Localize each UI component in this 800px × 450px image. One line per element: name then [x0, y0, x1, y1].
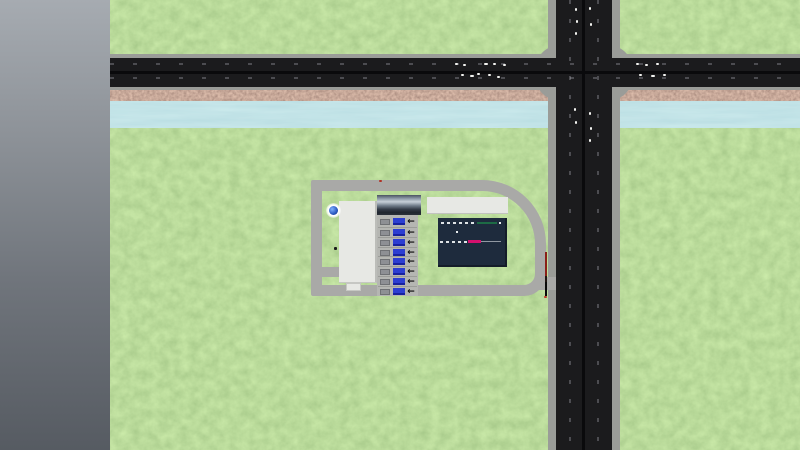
left-arrow-icon: ← [405, 287, 417, 297]
dock-bay-row[interactable]: ← [378, 286, 417, 296]
vertical-road-centerline [582, 0, 585, 450]
truck-trailer[interactable] [393, 258, 405, 265]
game-viewport: ←←←←←←←← [0, 0, 800, 450]
bay-crate [380, 219, 390, 225]
bay-crate [380, 230, 390, 236]
truck-trailer[interactable] [393, 229, 405, 236]
truck-trailer[interactable] [393, 249, 405, 256]
truck-trailer[interactable] [393, 268, 405, 275]
river [110, 101, 800, 128]
rock-embankment [110, 88, 800, 103]
dock-bay-row[interactable]: ← [378, 276, 417, 286]
bay-crate [380, 279, 390, 285]
roof-marking-dot [499, 222, 501, 224]
roof-marking-white-dashes [441, 222, 474, 224]
horizontal-road-curb-bottom [110, 87, 800, 90]
dock-bay-row[interactable]: ← [378, 256, 417, 266]
dock-bay-rows: ←←←←←←←← [378, 217, 417, 296]
roof-marking-green [477, 222, 497, 224]
bay-crate [380, 240, 390, 246]
truck-trailer[interactable] [393, 218, 405, 225]
dock-bay-row[interactable]: ← [378, 217, 417, 227]
horizontal-lane-dashes [110, 77, 800, 79]
horizontal-lane-dashes [110, 63, 800, 65]
horizontal-road-centerline [110, 71, 800, 74]
out-of-map-panel [0, 0, 110, 450]
roof-marking-faint-line [481, 241, 501, 242]
truck-trailer[interactable] [393, 239, 405, 246]
dock-bay-row[interactable]: ← [378, 247, 417, 257]
dock-bay-row[interactable]: ← [378, 266, 417, 276]
roof-marking-dot [456, 231, 458, 233]
truck-trailer[interactable] [393, 278, 405, 285]
fountain[interactable] [329, 206, 338, 215]
bay-crate [380, 250, 390, 256]
warehouse-building[interactable] [339, 201, 377, 283]
bay-crate [380, 269, 390, 275]
warehouse-annex [346, 283, 361, 291]
dock-barrel-roof [377, 195, 421, 215]
roof-marking-magenta [468, 240, 481, 243]
vertical-lane-dashes [597, 0, 599, 450]
bay-crate [380, 259, 390, 265]
roof-marking-white-dashes [440, 241, 468, 243]
vertical-lane-dashes [569, 0, 571, 450]
ground-object-dot [334, 247, 337, 250]
dock-bay-row[interactable]: ← [378, 237, 417, 247]
facility-connector-path [317, 267, 341, 277]
truck-trailer[interactable] [393, 288, 405, 295]
bay-crate [380, 289, 390, 295]
barrier-pole[interactable] [545, 252, 547, 296]
office-building[interactable] [427, 197, 508, 214]
left-arrow-icon: ← [405, 217, 417, 227]
dock-bay-row[interactable]: ← [378, 227, 417, 237]
